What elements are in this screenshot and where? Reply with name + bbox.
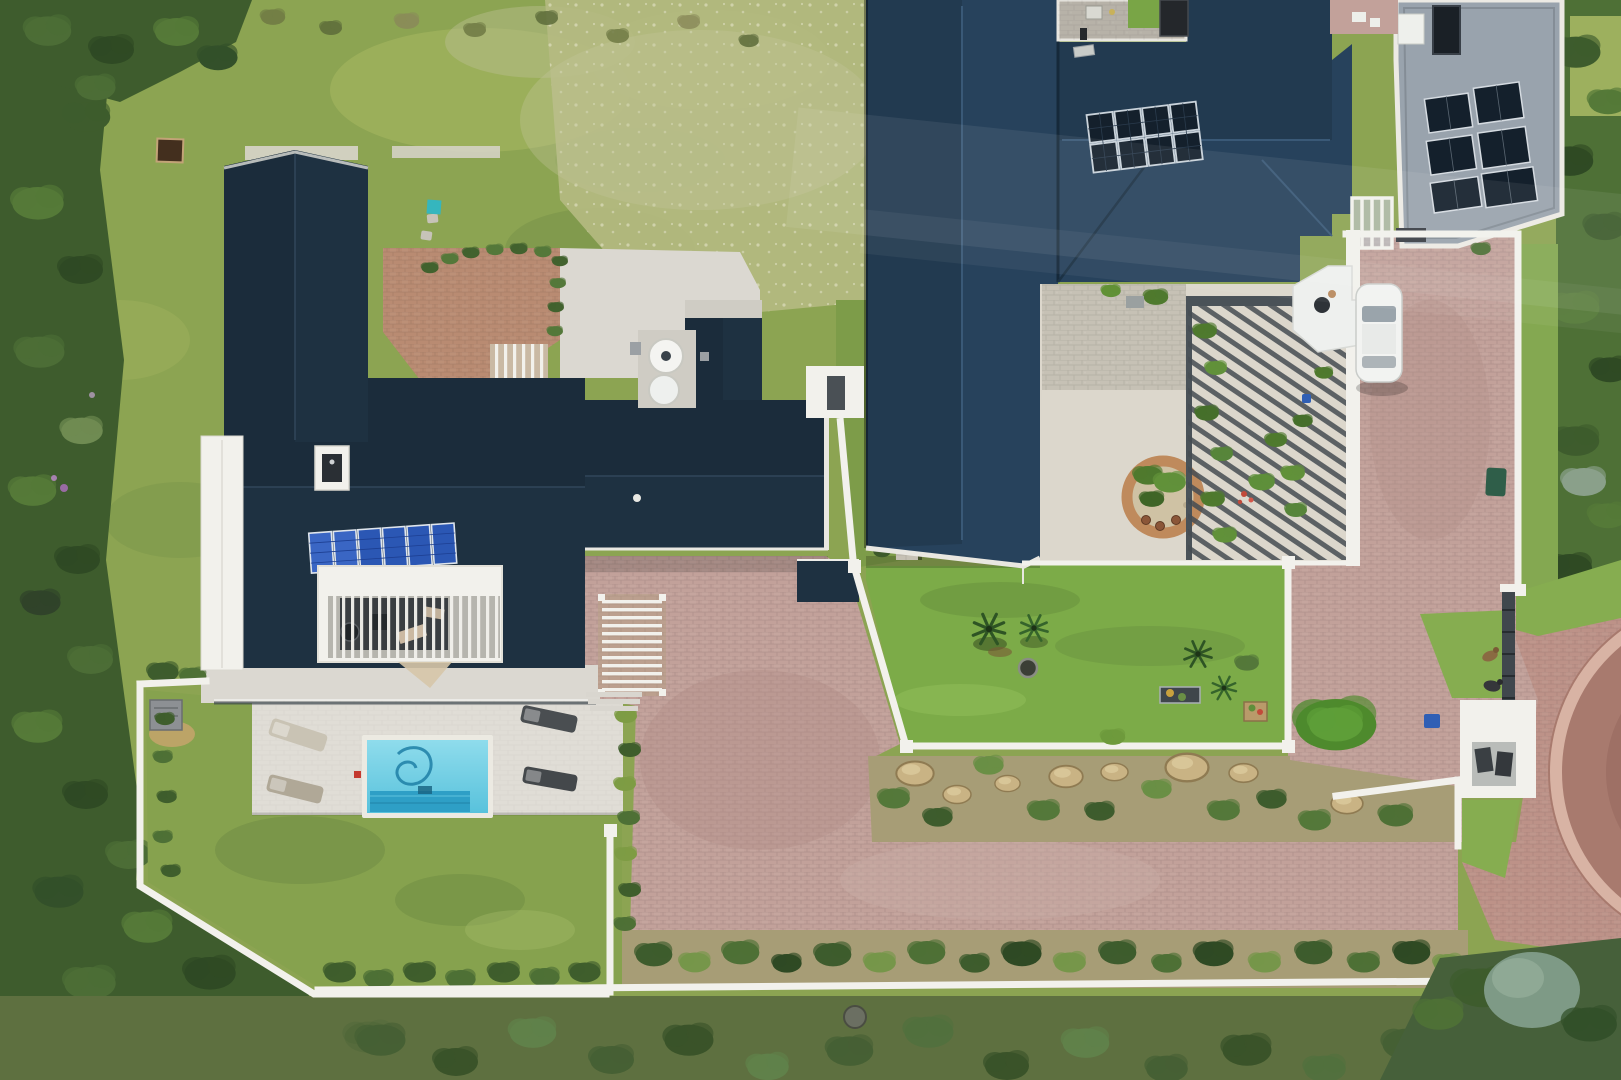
chimney bbox=[315, 446, 349, 490]
blue-pot bbox=[1302, 394, 1311, 403]
inner-courtyard bbox=[318, 566, 502, 662]
planter-box bbox=[1244, 702, 1267, 721]
rock bbox=[1101, 763, 1128, 780]
wheelie-bin-blue bbox=[1424, 714, 1440, 728]
pool-toy-red bbox=[354, 771, 361, 778]
roof-chimney bbox=[1160, 0, 1188, 36]
rock bbox=[995, 775, 1020, 791]
swimming-pool bbox=[354, 735, 493, 818]
gate bbox=[1500, 584, 1516, 716]
patio-table bbox=[1086, 6, 1102, 19]
rock bbox=[896, 762, 933, 786]
pool-step bbox=[370, 791, 470, 812]
teal-marker bbox=[427, 200, 442, 215]
drain-grate bbox=[157, 139, 184, 163]
steps bbox=[586, 692, 642, 711]
wheelie-bin-green bbox=[1485, 467, 1506, 496]
right-lawn bbox=[866, 556, 1288, 747]
roof-patio-cutout bbox=[1058, 0, 1188, 40]
rock bbox=[943, 786, 971, 804]
rock bbox=[1049, 766, 1083, 788]
white-pergola-small bbox=[490, 344, 548, 378]
rock bbox=[1166, 754, 1209, 782]
wild-vegetation-bottom bbox=[0, 996, 1621, 1080]
water-tank bbox=[649, 375, 679, 405]
fire-pit bbox=[1019, 659, 1037, 677]
aerial-photo: Top-down aerial drone photograph of two … bbox=[0, 0, 1621, 1080]
skylight bbox=[1433, 6, 1460, 54]
rock bbox=[1229, 764, 1258, 783]
entrance-structure bbox=[1460, 700, 1536, 798]
east-pergola bbox=[598, 594, 666, 696]
garage-shadow bbox=[585, 556, 828, 572]
manhole-cover bbox=[844, 1006, 866, 1028]
